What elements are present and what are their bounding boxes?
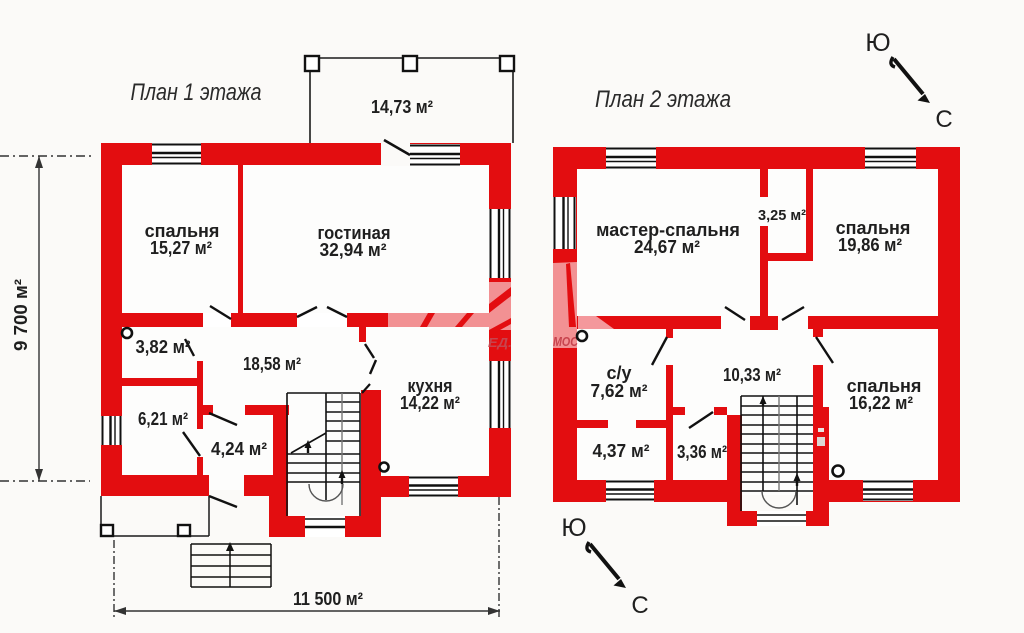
svg-text:16,22 м²: 16,22 м² — [849, 393, 913, 413]
svg-text:10,33 м²: 10,33 м² — [723, 365, 781, 385]
svg-text:3,82 м²: 3,82 м² — [136, 337, 191, 357]
svg-text:МОС: МОС — [553, 334, 578, 349]
svg-text:С: С — [935, 106, 952, 133]
svg-text:19,86 м²: 19,86 м² — [838, 235, 902, 255]
svg-text:4,37 м²: 4,37 м² — [593, 441, 650, 461]
svg-text:32,94 м²: 32,94 м² — [320, 240, 387, 260]
svg-text:14,22 м²: 14,22 м² — [400, 393, 460, 413]
svg-text:Ю: Ю — [561, 514, 586, 542]
svg-text:6,21 м²: 6,21 м² — [138, 409, 188, 429]
svg-text:24,67 м²: 24,67 м² — [634, 237, 700, 257]
svg-text:7,62 м²: 7,62 м² — [591, 381, 648, 401]
svg-text:3,25 м²: 3,25 м² — [758, 207, 806, 224]
svg-text:15,27 м²: 15,27 м² — [150, 238, 212, 258]
svg-text:с/у: с/у — [606, 363, 631, 383]
svg-text:9 700 м²: 9 700 м² — [11, 279, 31, 351]
svg-text:3,36 м²: 3,36 м² — [677, 442, 727, 462]
svg-text:4,24 м²: 4,24 м² — [211, 439, 267, 459]
svg-text:11 500 м²: 11 500 м² — [293, 589, 363, 609]
svg-text:Ю: Ю — [865, 29, 890, 57]
svg-text:План 2 этажа: План 2 этажа — [595, 86, 731, 113]
svg-text:14,73 м²: 14,73 м² — [371, 97, 433, 117]
svg-text:18,58 м²: 18,58 м² — [243, 354, 301, 374]
svg-text:С: С — [631, 592, 648, 619]
svg-text:План 1 этажа: План 1 этажа — [131, 79, 262, 106]
svg-text:ЕД.: ЕД. — [488, 335, 512, 350]
